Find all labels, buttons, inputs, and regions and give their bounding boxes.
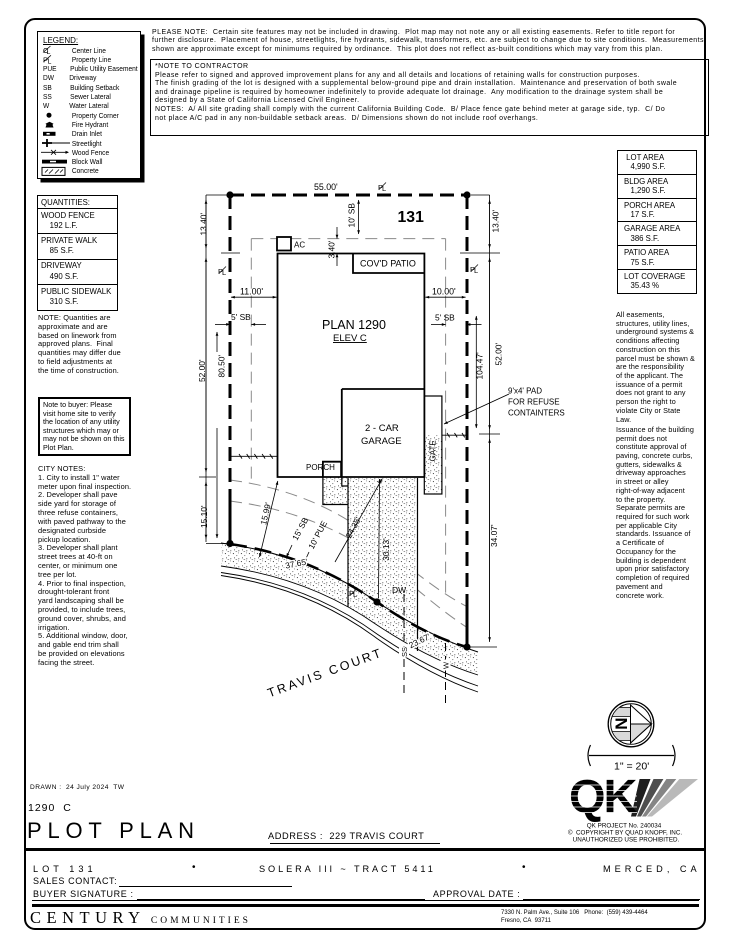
svg-text:DW: DW (392, 585, 406, 595)
svg-text:L: L (382, 184, 386, 193)
svg-text:10' SB: 10' SB (347, 203, 357, 228)
svg-text:AC: AC (294, 241, 305, 250)
svg-text:TRAVIS COURT: TRAVIS COURT (266, 645, 385, 700)
svg-text:L: L (353, 590, 357, 599)
svg-text:FOR REFUSE: FOR REFUSE (508, 398, 560, 407)
svg-text:2 - CAR: 2 - CAR (365, 423, 399, 434)
svg-text:QK PROJECT No. 240034: QK PROJECT No. 240034 (587, 823, 662, 830)
svg-text:PORCH: PORCH (306, 463, 335, 472)
svg-text:L: L (222, 268, 226, 277)
svg-text:PLAN 1290: PLAN 1290 (322, 318, 386, 332)
svg-text:W: W (442, 661, 451, 669)
svg-text:GARAGE: GARAGE (361, 436, 402, 447)
svg-text:10' PUE: 10' PUE (306, 519, 329, 551)
svg-text:15.10': 15.10' (199, 505, 209, 528)
svg-text:52.00': 52.00' (494, 343, 504, 366)
svg-text:5' SB: 5' SB (231, 312, 251, 322)
svg-text:80.50': 80.50' (217, 355, 227, 378)
svg-text:N: N (612, 718, 631, 730)
svg-text:© COPYRIGHT BY QUAD KNOPF, IN: © COPYRIGHT BY QUAD KNOPF, INC. (568, 829, 683, 837)
svg-text:10.00': 10.00' (432, 287, 456, 297)
svg-text:131: 131 (398, 209, 425, 226)
svg-text:9'x4' PAD: 9'x4' PAD (508, 387, 542, 396)
svg-text:15.99': 15.99' (258, 501, 273, 526)
svg-text:SS: SS (400, 647, 409, 657)
svg-text:34.07': 34.07' (489, 524, 499, 547)
svg-text:55.00': 55.00' (314, 182, 338, 192)
svg-text:COV'D PATIO: COV'D PATIO (360, 259, 416, 269)
svg-text:GATE: GATE (429, 440, 438, 461)
svg-text:13.40': 13.40' (491, 210, 501, 233)
svg-text:ELEV C: ELEV C (333, 333, 367, 344)
svg-text:11.00': 11.00' (240, 287, 263, 297)
svg-text:L: L (474, 266, 478, 275)
svg-text:3.40': 3.40' (327, 240, 337, 258)
svg-text:CONTAINTERS: CONTAINTERS (508, 409, 565, 418)
svg-text:15' SB: 15' SB (290, 515, 310, 542)
svg-text:52.00': 52.00' (197, 359, 207, 382)
svg-text:30.13': 30.13' (381, 538, 391, 561)
svg-text:UNAUTHORIZED USE PROHIBITED.: UNAUTHORIZED USE PROHIBITED. (573, 837, 680, 844)
svg-text:5' SB: 5' SB (435, 313, 455, 323)
svg-text:13.40': 13.40' (199, 213, 209, 236)
svg-text:104.47': 104.47' (475, 352, 485, 380)
